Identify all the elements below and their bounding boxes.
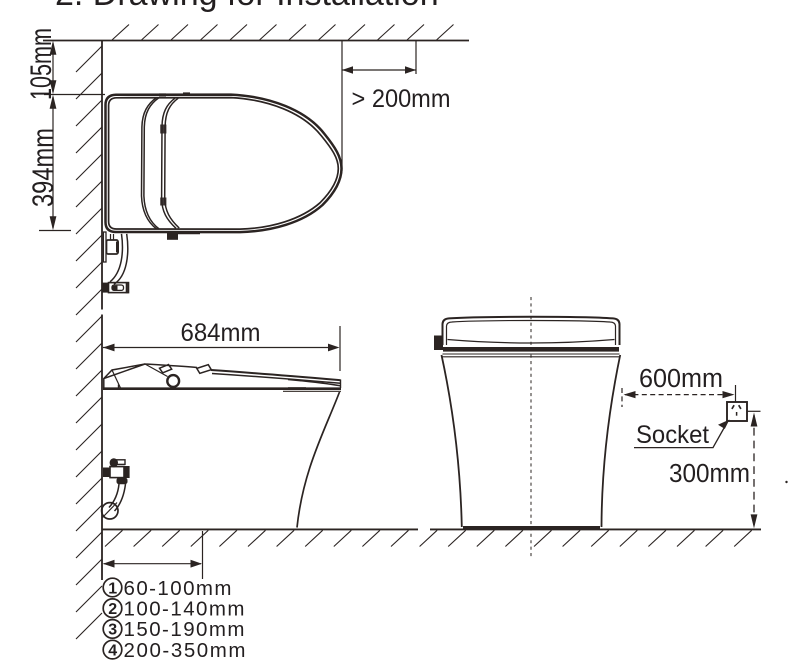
svg-text:Socket: Socket <box>636 421 709 449</box>
svg-text:200-350mm: 200-350mm <box>124 639 246 662</box>
svg-text:100-140mm: 100-140mm <box>124 598 245 621</box>
svg-text:1: 1 <box>108 580 117 597</box>
svg-text:600mm: 600mm <box>639 365 723 393</box>
svg-text:684mm: 684mm <box>181 319 261 347</box>
svg-text:3: 3 <box>108 622 117 639</box>
svg-text:> 200mm: > 200mm <box>352 85 451 113</box>
svg-text:60-100mm: 60-100mm <box>124 577 232 600</box>
svg-text:300mm: 300mm <box>669 460 750 488</box>
svg-text:150-190mm: 150-190mm <box>124 618 245 641</box>
svg-text:2: 2 <box>108 601 117 618</box>
svg-text:105mm: 105mm <box>25 28 58 100</box>
svg-text:2. Drawing for Installation: 2. Drawing for Installation <box>55 0 439 13</box>
svg-text:4: 4 <box>108 642 117 659</box>
svg-text:394mm: 394mm <box>27 128 60 207</box>
